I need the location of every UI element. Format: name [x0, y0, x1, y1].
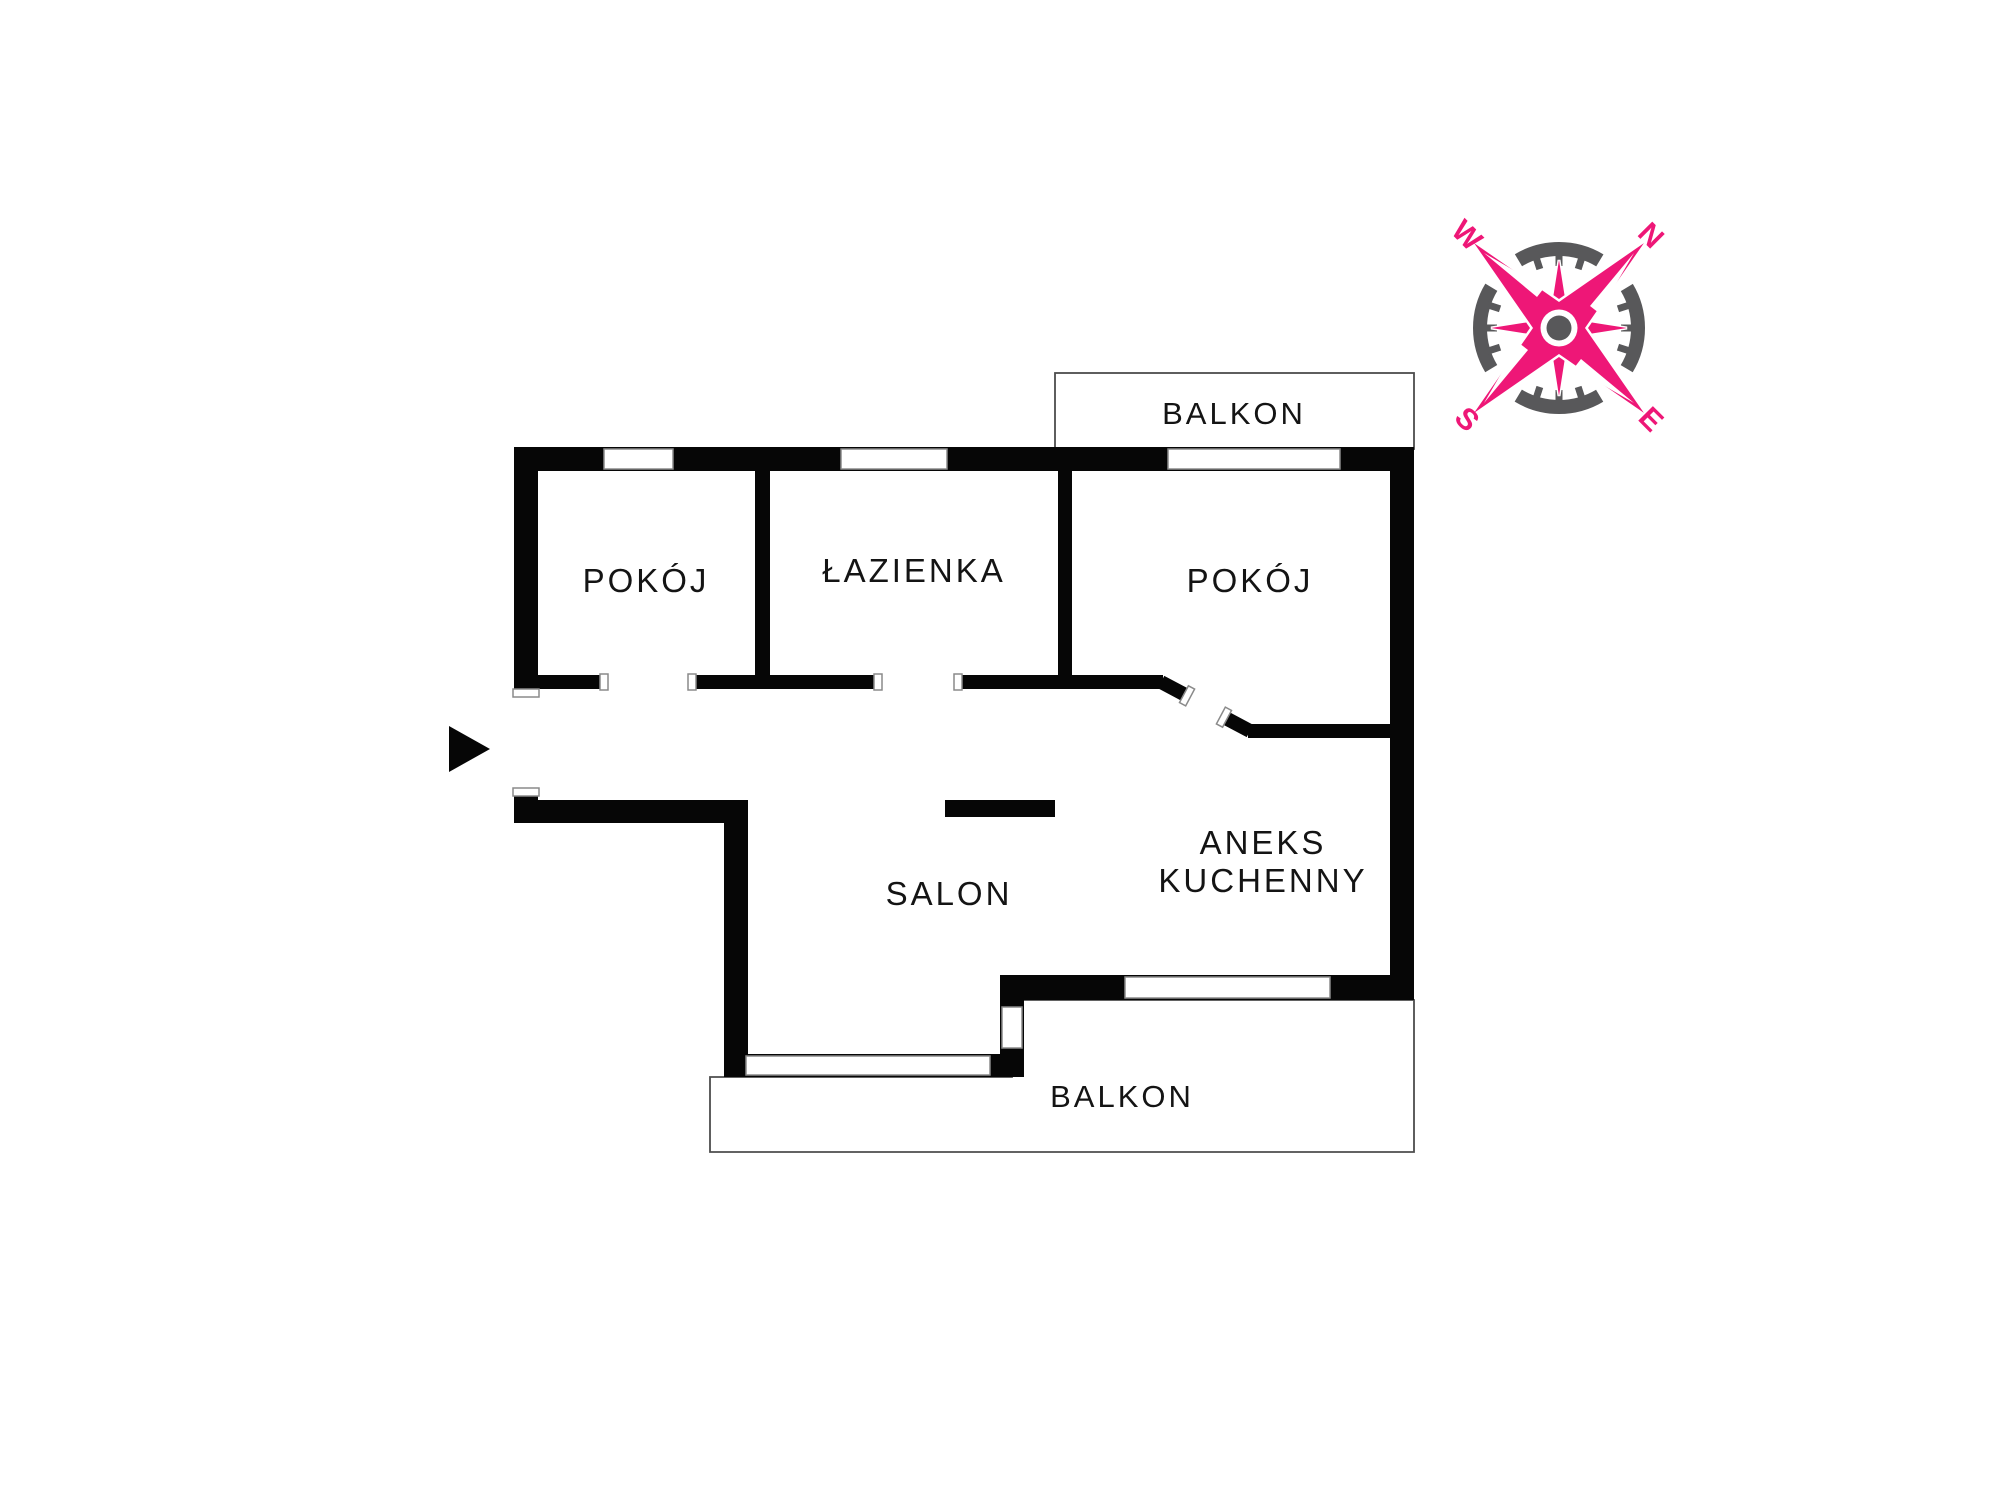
- jamb-lazienka-door-right: [954, 674, 962, 690]
- floor-plan: POKÓJ ŁAZIENKA POKÓJ SALON ANEKS KUCHENN…: [0, 0, 2000, 1500]
- room-label-aneks-line2: KUCHENNY: [1158, 862, 1367, 899]
- window-pokoj-left: [604, 449, 673, 469]
- room-label-aneks-line1: ANEKS: [1200, 824, 1327, 861]
- wall-divider-pokoj-lazienka: [755, 471, 770, 675]
- door-jambs: [513, 674, 962, 796]
- wall-left-upper: [514, 447, 538, 690]
- window-salon-bottom: [746, 1056, 990, 1075]
- room-label-lazienka: ŁAZIENKA: [822, 552, 1006, 589]
- room-label-balkon-top: BALKON: [1162, 396, 1306, 431]
- wall-int-segment1: [538, 675, 601, 689]
- window-aneks-bottom: [1125, 977, 1330, 998]
- jamb-entrance-bottom: [513, 788, 539, 796]
- jamb-segment2-left: [688, 674, 696, 690]
- interior-walls: [538, 471, 1390, 817]
- wall-hall-stub: [945, 800, 1055, 817]
- room-label-salon: SALON: [886, 875, 1013, 912]
- entrance-arrow-icon: [449, 726, 490, 772]
- jamb-pokoj-left-door: [600, 674, 608, 690]
- compass-hub-inner: [1547, 316, 1572, 341]
- window-lazienka: [841, 449, 947, 469]
- window-connector: [1002, 1007, 1022, 1048]
- windows: [604, 449, 1340, 1075]
- jamb-entrance-top: [513, 689, 539, 697]
- wall-right: [1390, 447, 1414, 1000]
- jamb-lazienka-door-left: [874, 674, 882, 690]
- compass-rose: N W S E: [1445, 214, 1671, 439]
- wall-salon-left: [724, 800, 748, 1077]
- wall-aneks-pokoj: [1248, 724, 1390, 738]
- room-label-pokoj-right: POKÓJ: [1187, 562, 1314, 599]
- room-label-pokoj-left: POKÓJ: [583, 562, 710, 599]
- wall-int-segment2: [695, 675, 875, 689]
- wall-int-segment3: [962, 675, 1163, 689]
- room-label-balkon-bottom: BALKON: [1050, 1079, 1194, 1114]
- window-balcony-door-top: [1168, 449, 1340, 469]
- wall-divider-lazienka-pokoj: [1058, 471, 1072, 675]
- wall-hall-bottom: [514, 800, 748, 823]
